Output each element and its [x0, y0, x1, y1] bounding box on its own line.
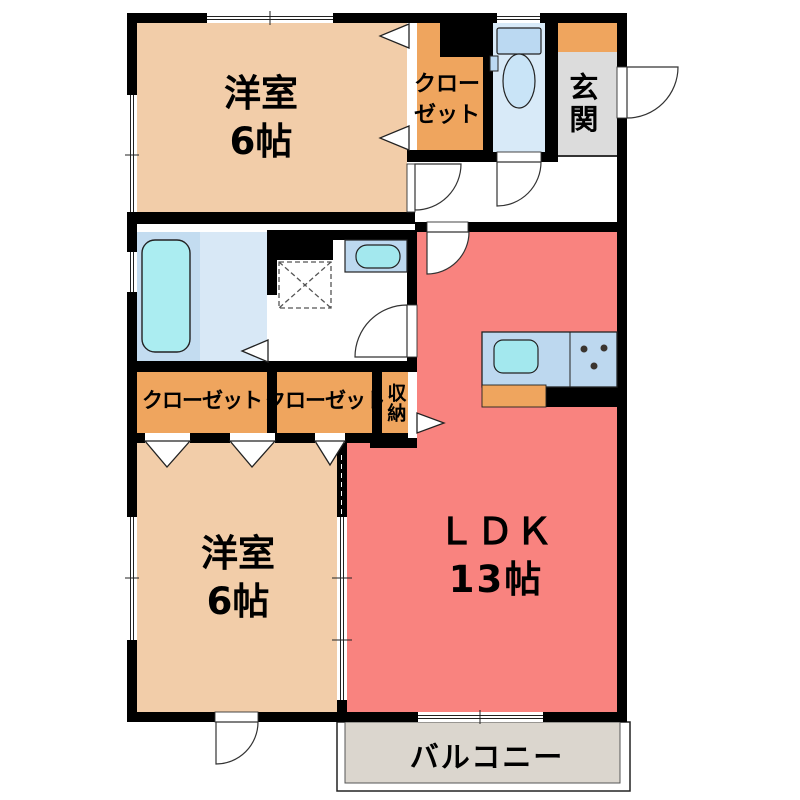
hall-bedroom-door [407, 164, 461, 212]
bedroom-bottom-exterior-door [215, 712, 258, 764]
window-bedroom-bottom-left [125, 517, 139, 640]
balcony-label: バルコニー [410, 739, 564, 777]
bedroom-top-name: 洋室 [224, 70, 298, 118]
window-bedroom-top [207, 11, 333, 25]
bedroom-bottom-size: 6帖 [201, 578, 275, 626]
closet-top-label: クロー ゼット [414, 69, 480, 131]
window-bedroom-top-left [125, 95, 139, 212]
storage-opening [408, 372, 417, 438]
bathtub-icon [142, 240, 190, 352]
bedroom-bottom-label: 洋室 6帖 [201, 530, 275, 626]
washbasin-icon [345, 240, 407, 272]
entrance-step-line [558, 155, 617, 157]
ldk-size: 13帖 [438, 556, 555, 604]
bath-floor-light [200, 232, 267, 361]
washroom-door [355, 305, 417, 357]
window-toilet [497, 13, 540, 23]
ldk-name: ＬＤＫ [438, 508, 555, 556]
toilet-door [497, 152, 541, 206]
bedroom-top-size: 6帖 [224, 118, 298, 166]
window-balcony-sliding [418, 710, 543, 724]
washing-machine-area [279, 262, 331, 308]
closet-top-line1: クロー [414, 69, 480, 100]
ldk-label: ＬＤＫ 13帖 [438, 508, 555, 604]
kitchen-sink-icon [494, 340, 538, 373]
entry-door [617, 67, 678, 118]
bedroom-bottom-name: 洋室 [201, 530, 275, 578]
shoe-cabinet [558, 23, 617, 52]
closet-top-line2: ゼット [414, 100, 480, 131]
storage-label: 収納 [383, 383, 408, 423]
entrance-label: 玄関 [562, 72, 600, 136]
closet-left-label: クローゼット [142, 387, 262, 414]
kitchen-lower-counter [482, 385, 546, 407]
window-bath [127, 252, 137, 292]
floorplan-page: 洋室 6帖 クロー ゼット 玄関 クローゼット クローゼット 収納 洋室 6帖 … [0, 0, 800, 800]
bedroom-top-label: 洋室 6帖 [224, 70, 298, 166]
closet-right-label: クローゼット [265, 387, 385, 414]
